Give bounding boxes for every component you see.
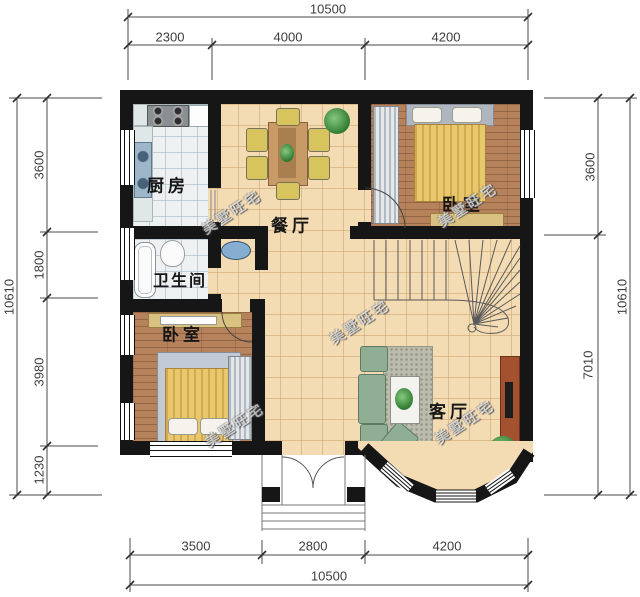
dim-bottom-seg-0: 3500 xyxy=(182,539,211,554)
room-label-bathroom: 卫生间 xyxy=(153,267,207,291)
plant xyxy=(324,108,350,134)
wash-basin xyxy=(221,241,251,260)
dim-left-total: 10610 xyxy=(2,279,17,315)
window xyxy=(520,130,535,198)
dim-left-seg-2: 3980 xyxy=(32,358,47,387)
stove xyxy=(147,105,189,127)
wall-segment xyxy=(345,441,370,455)
coffee-table-plant xyxy=(395,388,413,410)
toilet xyxy=(160,240,185,267)
window xyxy=(120,228,135,280)
entrance-porch xyxy=(262,455,365,531)
armchair xyxy=(360,346,388,372)
dim-top-seg-0: 2300 xyxy=(156,30,185,45)
window xyxy=(120,315,135,355)
wall-segment xyxy=(120,90,533,104)
wardrobe xyxy=(373,106,399,224)
room-label-bedroom-left: 卧室 xyxy=(162,321,204,346)
wall-segment xyxy=(120,299,222,312)
floor-plan: 10500 2300 4000 4200 10610 3600 1800 398… xyxy=(0,0,640,597)
dim-left-seg-1: 1800 xyxy=(32,251,47,280)
dim-left-seg-3: 1230 xyxy=(32,456,47,485)
dining-chair xyxy=(276,108,300,126)
dining-chair xyxy=(246,128,268,152)
dim-top-seg-2: 4200 xyxy=(432,30,461,45)
dim-right-seg-1: 7010 xyxy=(581,351,596,380)
dim-top-seg-1: 4000 xyxy=(274,30,303,45)
wall-segment xyxy=(208,90,221,188)
dining-chair xyxy=(308,128,330,152)
dim-left-seg-0: 3600 xyxy=(32,151,47,180)
plant xyxy=(404,460,432,488)
pillow xyxy=(412,107,442,123)
tv xyxy=(505,382,513,418)
table-plant xyxy=(280,144,294,162)
dim-bottom-total: 10500 xyxy=(311,569,347,584)
dining-chair xyxy=(246,156,268,180)
pillow xyxy=(452,107,482,123)
dim-bottom-seg-2: 4200 xyxy=(433,539,462,554)
wall-segment xyxy=(358,90,371,190)
sofa xyxy=(358,374,386,424)
dim-top-total: 10500 xyxy=(310,2,346,17)
wall-segment xyxy=(252,299,265,455)
room-label-dining: 餐厅 xyxy=(271,212,313,237)
dining-chair xyxy=(276,182,300,200)
dim-bottom-seg-1: 2800 xyxy=(299,539,328,554)
dining-chair xyxy=(308,156,330,180)
fridge xyxy=(189,105,209,127)
dim-right-seg-0: 3600 xyxy=(583,153,598,182)
window xyxy=(120,130,135,185)
plant xyxy=(488,436,518,466)
pillow xyxy=(168,418,198,435)
dim-right-total: 10610 xyxy=(615,279,630,315)
wall-segment xyxy=(255,226,268,270)
room-label-kitchen: 厨房 xyxy=(147,172,189,197)
window xyxy=(120,403,135,440)
